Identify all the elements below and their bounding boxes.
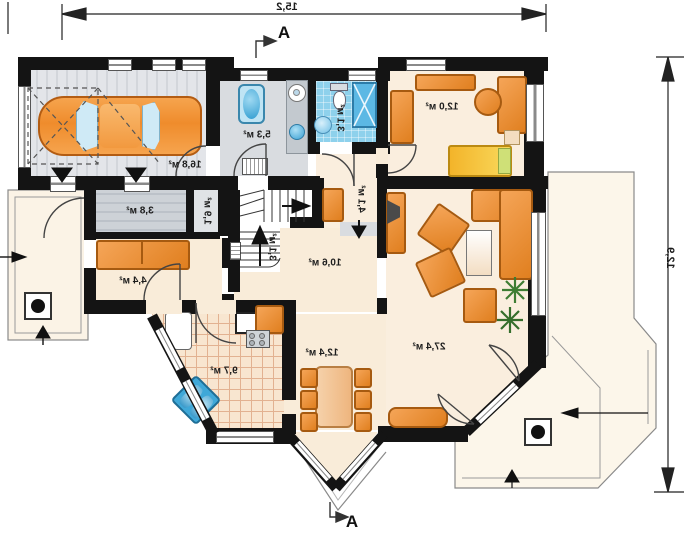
garage-opening-1: [50, 176, 76, 192]
floor-plan: 15,2 12,9 A A 16,8 м² 5,3 м² 3,1 м² 12,0…: [0, 0, 700, 537]
wall-storage-closet-div: [186, 182, 194, 236]
garage-opening-2: [124, 176, 150, 192]
hallway-sideboard: [96, 240, 190, 270]
wall-hallway-bottom-a: [84, 300, 146, 314]
utility-area-label: 5,3 м²: [243, 130, 270, 141]
dim-arrow-up: [662, 57, 674, 81]
hallway-kitchen-door-opening: [146, 300, 182, 314]
hall-area-label: 10,6 м²: [309, 258, 342, 269]
terrace-arrow-left: [562, 408, 578, 418]
garage-utility-door-opening: [206, 146, 220, 176]
bathroom-door-opening: [320, 142, 352, 154]
porch-column-core: [31, 299, 45, 313]
coffee-table: [466, 230, 492, 276]
porch-column: [24, 292, 52, 320]
wall-closet-east: [218, 182, 230, 236]
toilet-tank: [330, 83, 348, 91]
radiator-utility: [242, 158, 268, 175]
fridge: [165, 312, 192, 350]
shower: [352, 82, 377, 128]
front-door-arc: [44, 198, 84, 238]
wall-bedroom-top: [378, 57, 548, 71]
wall-living-top: [378, 176, 548, 189]
burner-2: [259, 333, 265, 339]
car: [38, 96, 202, 156]
living-window-right: [531, 212, 546, 316]
dining-table: [315, 366, 353, 428]
bed-pillow: [498, 148, 511, 174]
garage-door: [18, 86, 31, 168]
bedroom-door-opening: [376, 148, 388, 164]
dim-arrow-down: [662, 468, 674, 492]
car-windshield: [76, 101, 98, 151]
dining-area-label: 12,4 м²: [306, 348, 339, 359]
wall-stairs-stub: [290, 217, 322, 228]
utility-sink: [289, 124, 305, 140]
corridor-cabinet: [322, 188, 344, 222]
porch-arrow-up: [36, 326, 50, 338]
dining-chair-4: [354, 368, 372, 388]
dim-width-label: 15,2: [276, 1, 297, 13]
ottoman: [463, 288, 497, 323]
radiator-hall: [230, 242, 241, 260]
front-door-opening: [84, 240, 96, 268]
terrace-column-core: [531, 425, 545, 439]
car-rear-window: [142, 102, 160, 150]
terrace-column: [524, 418, 552, 446]
dining-chair-6: [354, 412, 372, 432]
wall-house-west: [84, 176, 96, 302]
section-arrow-top: [264, 36, 276, 46]
garage-window-1: [108, 59, 132, 71]
burner-4: [259, 340, 265, 346]
kitchen-window-bottom: [216, 431, 274, 443]
wall-hall-stub: [377, 298, 387, 314]
bedroom-window-top: [406, 59, 446, 71]
bedroom-area-label: 12,0 м²: [426, 102, 459, 113]
kitchen-area-label: 9,7 м²: [210, 366, 237, 377]
closet-area-label: 1,9 м²: [202, 197, 213, 224]
dining-chair-2: [300, 390, 318, 410]
garage-window-2: [152, 59, 176, 71]
dim-depth-label: 12,9: [664, 247, 676, 268]
corridor-step: [340, 222, 378, 236]
section-label-top: A: [278, 23, 290, 43]
garage-window-3: [182, 59, 206, 71]
wall-living-bottom: [378, 426, 468, 442]
bathroom-window: [348, 70, 376, 81]
washing-machine: [288, 84, 306, 102]
burner-3: [249, 340, 255, 346]
dining-bench: [388, 407, 448, 428]
nightstand: [504, 130, 520, 145]
garage-area-label: 16,8 м²: [169, 160, 202, 171]
hall-kitchen-door-opening: [196, 300, 236, 314]
bedroom-window-right: [526, 84, 544, 142]
bed: [448, 145, 512, 177]
utility-window: [240, 70, 268, 81]
dining-chair-3: [300, 412, 318, 432]
storage-area-label: 3,8 м²: [126, 206, 153, 217]
burner-1: [249, 333, 255, 339]
car-roof: [100, 104, 140, 148]
laundry-tub: [238, 84, 265, 124]
stairs-area-label: 3,1 м²: [267, 233, 278, 260]
corridor-area-label: 4,1 м²: [356, 185, 367, 212]
bathroom-area-label: 3,1 м²: [335, 104, 346, 131]
dining-bay-floor: [284, 430, 384, 492]
wall-kitchen-east: [282, 300, 296, 400]
laundry-tub-basin: [243, 89, 260, 119]
dim-arrow-left: [62, 8, 86, 20]
bath-sink: [314, 116, 332, 134]
dining-chair-1: [300, 368, 318, 388]
stove: [246, 330, 270, 348]
dining-chair-5: [354, 390, 372, 410]
wall-storage-bottom: [88, 232, 220, 239]
desk-chair: [474, 88, 502, 116]
sofa-vertical: [499, 189, 533, 280]
porch-arrow-right: [12, 252, 26, 262]
wall-bedroom-left: [376, 70, 388, 148]
bedroom-wardrobe: [390, 90, 414, 144]
utility-door-opening: [238, 176, 268, 190]
living-area-label: 27,4 м²: [413, 342, 446, 353]
section-label-bottom: A: [346, 512, 358, 532]
terrace-arrow-up: [505, 470, 519, 482]
bedroom-shelf: [415, 74, 476, 91]
hallway-area-label: 4,4 м²: [119, 276, 146, 287]
dim-arrow-right: [522, 8, 546, 20]
washing-machine-drum: [293, 89, 300, 96]
sideboard-divider: [141, 242, 143, 264]
